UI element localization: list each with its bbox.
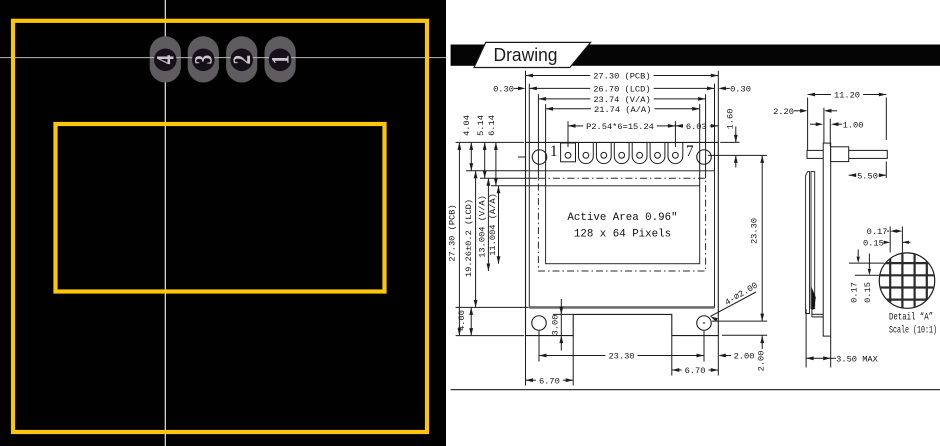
svg-text:0.30: 0.30 bbox=[493, 85, 514, 95]
svg-text:3.50 MAX: 3.50 MAX bbox=[836, 354, 878, 364]
svg-text:5.14: 5.14 bbox=[476, 115, 486, 136]
svg-text:1: 1 bbox=[550, 143, 558, 160]
svg-text:6.03: 6.03 bbox=[686, 122, 707, 132]
svg-text:0.30: 0.30 bbox=[730, 85, 751, 95]
svg-text:Scale (10:1): Scale (10:1) bbox=[889, 325, 937, 337]
svg-text:1: 1 bbox=[266, 55, 294, 64]
svg-text:21.74 (A/A): 21.74 (A/A) bbox=[594, 105, 651, 115]
svg-text:19.26±0.2 (LCD): 19.26±0.2 (LCD) bbox=[464, 199, 474, 277]
svg-text:11.20: 11.20 bbox=[834, 91, 860, 101]
svg-text:0.15: 0.15 bbox=[863, 282, 873, 303]
svg-text:4.04: 4.04 bbox=[462, 115, 472, 136]
svg-text:6.70: 6.70 bbox=[539, 376, 560, 386]
svg-text:0.15: 0.15 bbox=[863, 238, 884, 248]
svg-text:11.004 (A/A): 11.004 (A/A) bbox=[488, 193, 498, 256]
svg-text:23.30: 23.30 bbox=[608, 352, 634, 362]
svg-text:13.004 (V/A): 13.004 (V/A) bbox=[477, 195, 487, 258]
svg-text:P2.54*6=15.24: P2.54*6=15.24 bbox=[586, 122, 654, 132]
svg-text:27.30 (PCB): 27.30 (PCB) bbox=[593, 72, 650, 82]
svg-text:1.00: 1.00 bbox=[843, 120, 864, 130]
svg-text:4.00: 4.00 bbox=[457, 310, 467, 331]
svg-text:Drawing: Drawing bbox=[494, 44, 558, 65]
svg-text:0.17: 0.17 bbox=[867, 227, 888, 237]
svg-text:2.00: 2.00 bbox=[756, 351, 766, 372]
svg-text:26.70 (LCD): 26.70 (LCD) bbox=[593, 85, 650, 95]
svg-text:128 x 64 Pixels: 128 x 64 Pixels bbox=[574, 229, 671, 241]
svg-text:2.00: 2.00 bbox=[734, 352, 755, 362]
svg-text:Active Area 0.96″: Active Area 0.96″ bbox=[567, 212, 677, 224]
svg-text:6.70: 6.70 bbox=[685, 366, 706, 376]
svg-text:1.60: 1.60 bbox=[726, 109, 736, 130]
svg-text:0.17: 0.17 bbox=[850, 282, 860, 303]
svg-text:4: 4 bbox=[151, 55, 179, 64]
svg-text:2: 2 bbox=[227, 55, 255, 64]
svg-text:23.74 (V/A): 23.74 (V/A) bbox=[593, 95, 650, 105]
svg-text:3.00: 3.00 bbox=[550, 315, 560, 336]
svg-text:3: 3 bbox=[189, 55, 217, 64]
svg-text:6.14: 6.14 bbox=[487, 115, 497, 136]
svg-text:Detail “A”: Detail “A” bbox=[889, 312, 933, 324]
svg-text:2.20: 2.20 bbox=[773, 107, 794, 117]
svg-text:27.30 (PCB): 27.30 (PCB) bbox=[448, 204, 458, 261]
svg-text:23.30: 23.30 bbox=[750, 218, 760, 244]
svg-text:7: 7 bbox=[686, 143, 694, 160]
svg-text:5.50: 5.50 bbox=[857, 171, 878, 181]
